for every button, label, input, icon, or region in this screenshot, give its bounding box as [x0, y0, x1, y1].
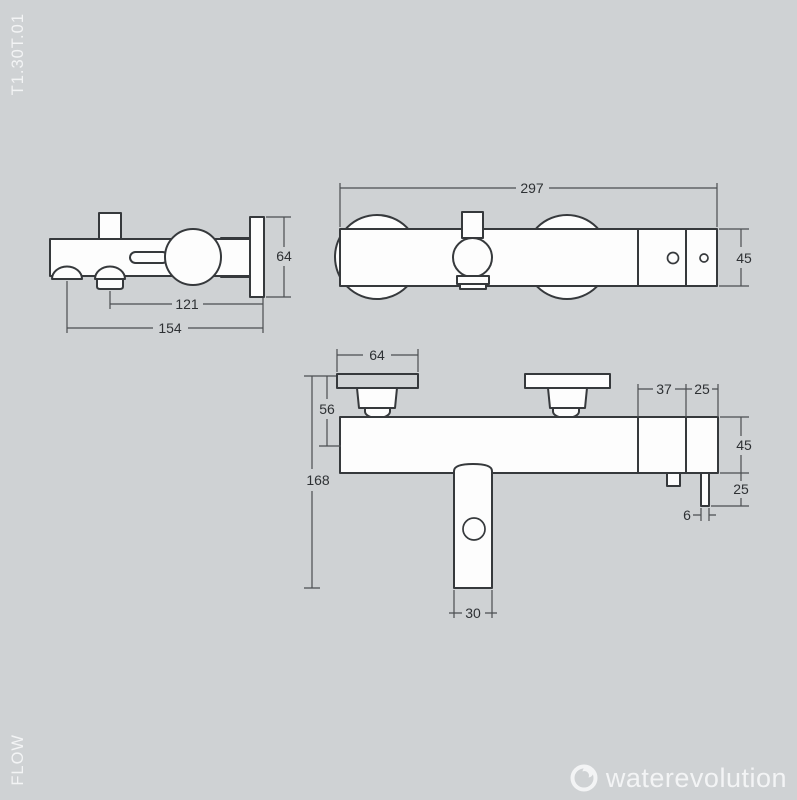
front-diverter-circle: [453, 238, 492, 277]
side-wall-plate: [250, 217, 264, 297]
plan-left-wall-plate: [337, 374, 418, 388]
model-code-label: T1.30T.01: [9, 13, 28, 95]
dim-side-outlet-to-wall: 121: [175, 296, 199, 312]
brand-logo: waterevolution: [569, 762, 787, 794]
front-body-bar: [340, 229, 717, 286]
front-screw-hole-small: [700, 254, 708, 262]
dim-plan-spout-width: 30: [465, 605, 481, 621]
dim-front-height: 45: [736, 250, 752, 266]
technical-drawing: 64 121 154 297 45: [0, 0, 797, 800]
water-drop-ring-icon: [569, 762, 601, 794]
plan-right-plate-neck: [548, 388, 587, 408]
dim-plan-section-a: 37: [656, 381, 672, 397]
dim-side-projection: 154: [158, 320, 182, 336]
drawing-canvas: T1.30T.01 FLOW 64 121 154: [0, 0, 797, 800]
dim-plan-tube-width: 6: [683, 507, 691, 523]
dim-plan-total-drop: 168: [306, 472, 330, 488]
dim-plan-plate-width: 64: [369, 347, 385, 363]
dim-plan-body-depth: 45: [736, 437, 752, 453]
side-view: 64 121 154: [50, 213, 292, 336]
side-diverter-knob: [99, 213, 121, 240]
series-name-label: FLOW: [9, 734, 28, 786]
plan-bottom-tab: [667, 473, 680, 486]
dim-plan-tube-drop: 25: [733, 481, 749, 497]
dim-front-width: 297: [520, 180, 544, 196]
plan-spout-hole: [463, 518, 485, 540]
front-diverter-base: [457, 276, 489, 284]
brand-name: waterevolution: [606, 763, 787, 794]
plan-right-wall-plate: [525, 374, 610, 388]
plan-view: 64 168 56 37 25 45 25 6 30: [304, 347, 752, 621]
side-handle-knob: [165, 229, 221, 285]
front-screw-hole-large: [668, 253, 679, 264]
dim-side-plate-height: 64: [276, 248, 292, 264]
front-diverter-base-lower: [460, 284, 486, 289]
side-hose-connector: [97, 279, 123, 289]
plan-body-bar: [340, 417, 718, 473]
dim-plan-plate-offset: 56: [319, 401, 335, 417]
dim-plan-section-b: 25: [694, 381, 710, 397]
side-lever-handle: [130, 252, 168, 263]
front-diverter-knob: [462, 212, 483, 238]
plan-inlet-tube: [701, 473, 709, 506]
plan-left-plate-neck: [357, 388, 397, 408]
front-view: 297 45: [335, 180, 752, 299]
